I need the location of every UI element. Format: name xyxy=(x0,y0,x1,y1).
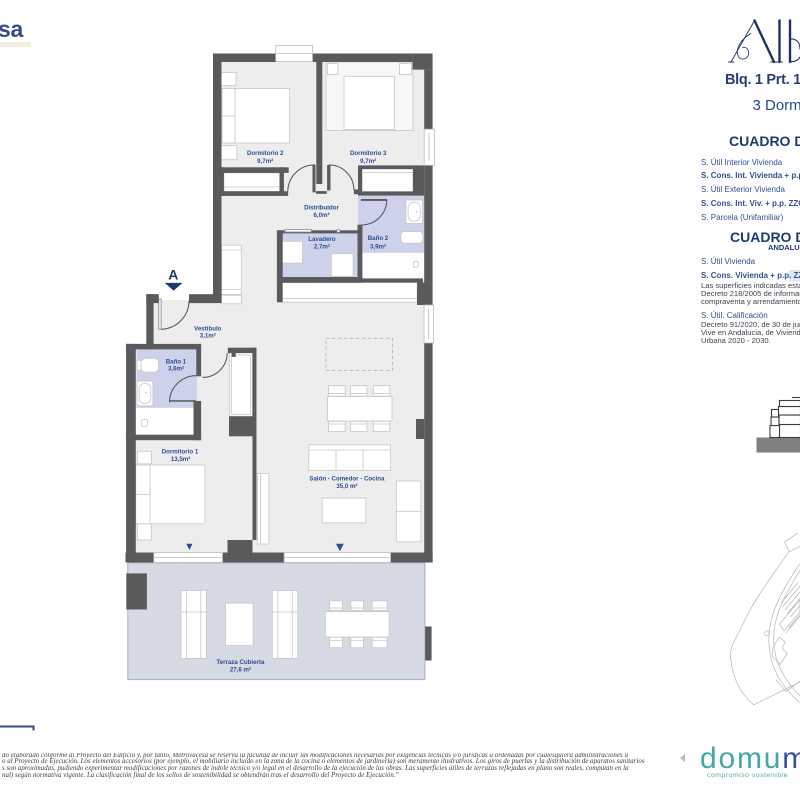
svg-text:Lavadero: Lavadero xyxy=(308,236,336,243)
svg-text:A: A xyxy=(168,267,178,283)
svg-text:Salón - Comedor - Cocina: Salón - Comedor - Cocina xyxy=(309,476,385,483)
svg-text:2,7m²: 2,7m² xyxy=(314,244,330,251)
svg-text:Dormitorio 1: Dormitorio 1 xyxy=(162,448,199,455)
svg-text:13,5m²: 13,5m² xyxy=(171,456,190,463)
svg-text:9,7m²: 9,7m² xyxy=(360,158,376,165)
svg-text:6,0m²: 6,0m² xyxy=(313,212,329,219)
svg-text:Terraza Cubierta: Terraza Cubierta xyxy=(216,659,265,666)
svg-text:3,6m²: 3,6m² xyxy=(168,365,184,372)
svg-text:9,7m²: 9,7m² xyxy=(257,158,273,165)
svg-text:35,0 m²: 35,0 m² xyxy=(336,483,357,490)
svg-text:Baño 2: Baño 2 xyxy=(368,235,389,242)
svg-text:3,9m²: 3,9m² xyxy=(370,243,386,250)
svg-text:Dormitorio 2: Dormitorio 2 xyxy=(247,150,284,157)
svg-text:27,6 m²: 27,6 m² xyxy=(230,667,251,674)
svg-text:Distribuidor: Distribuidor xyxy=(304,205,339,212)
svg-text:Dormitorio 3: Dormitorio 3 xyxy=(350,150,387,157)
svg-text:3,1m²: 3,1m² xyxy=(200,333,216,340)
svg-text:Vestibulo: Vestibulo xyxy=(194,325,222,332)
